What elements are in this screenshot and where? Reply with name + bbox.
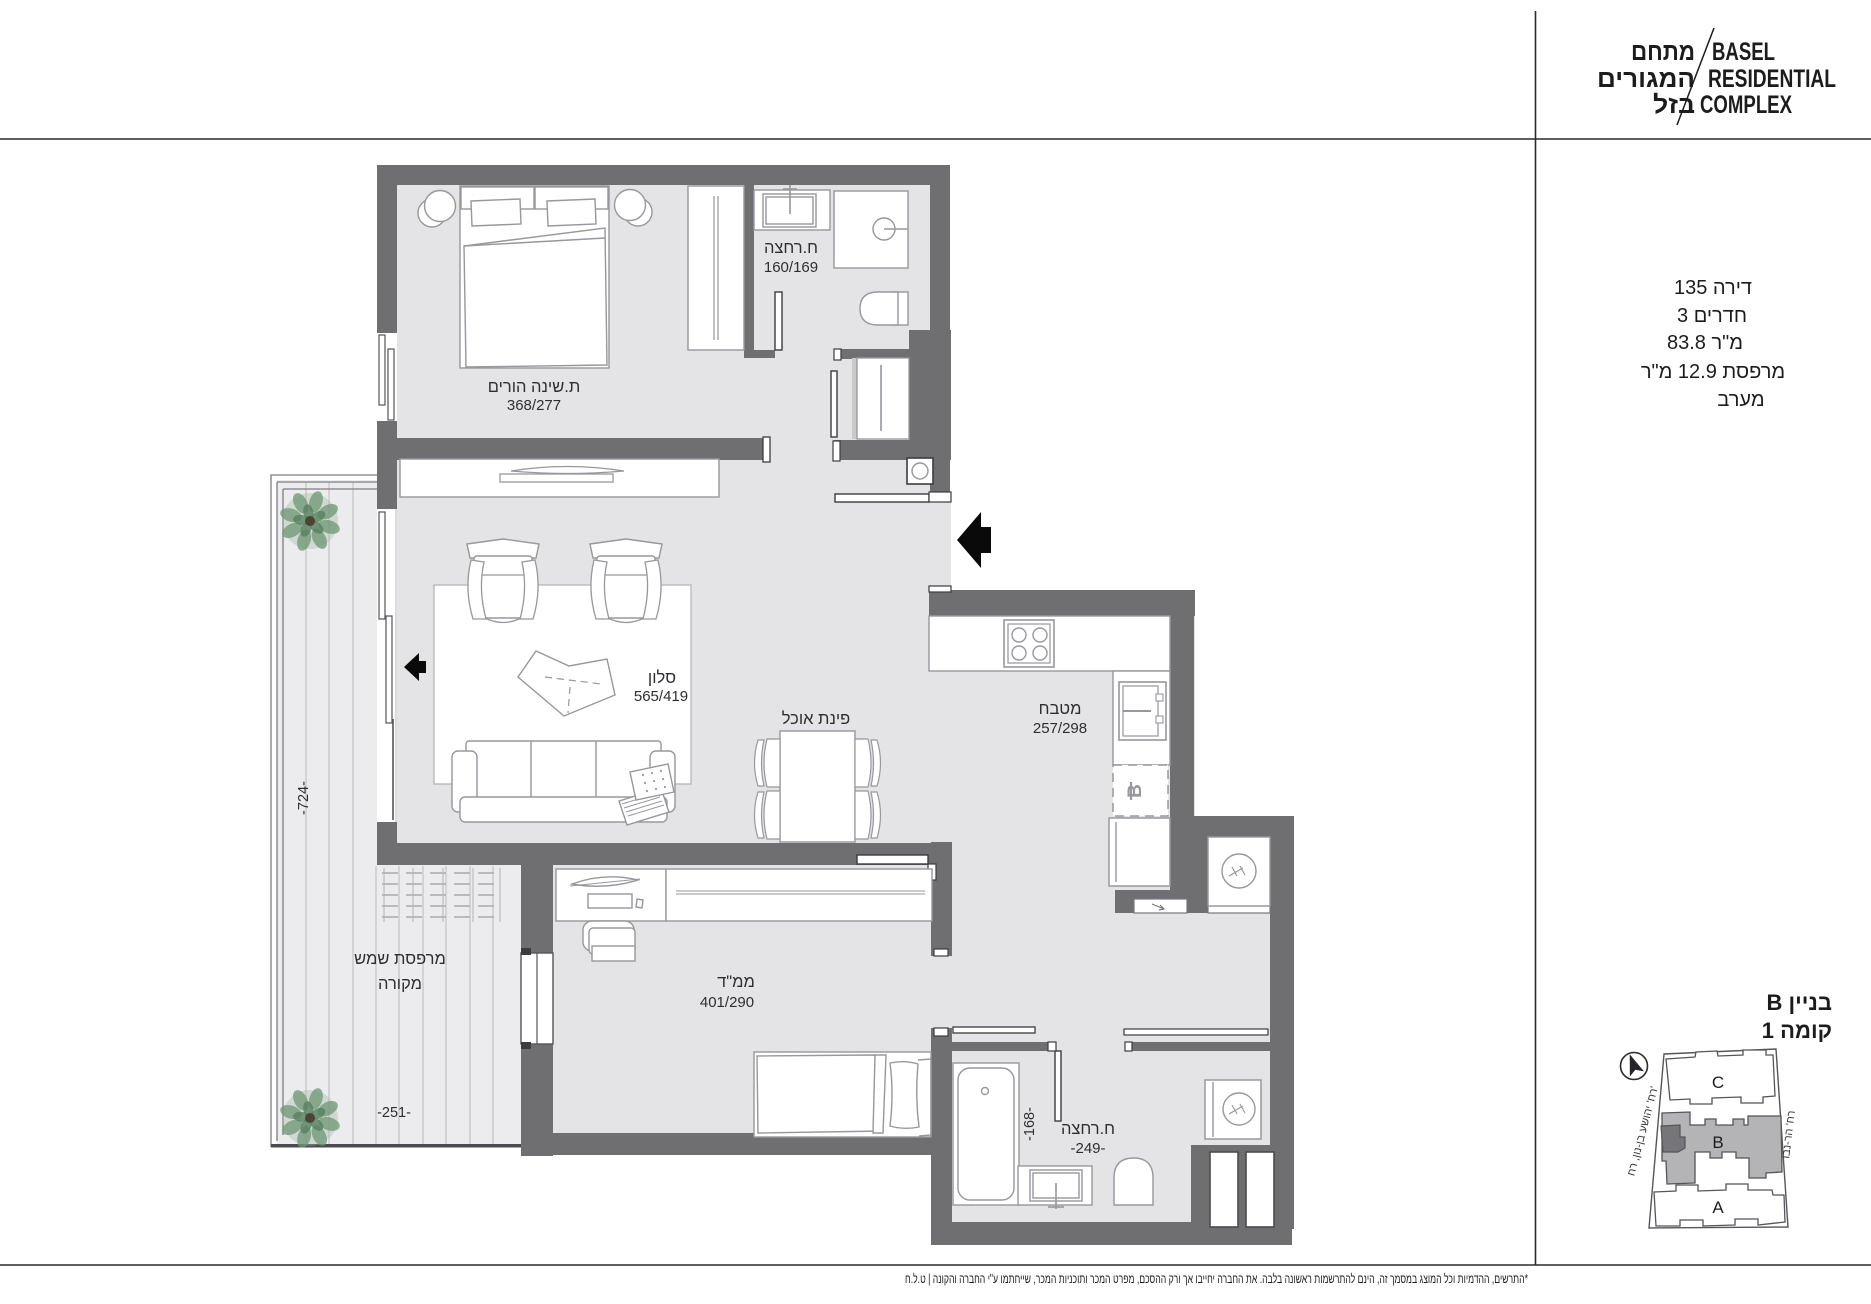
svg-text:565/419: 565/419 — [634, 688, 688, 705]
svg-text:368/277: 368/277 — [507, 397, 561, 414]
svg-text:257/298: 257/298 — [1033, 720, 1087, 737]
svg-text:RESIDENTIAL: RESIDENTIAL — [1708, 65, 1836, 93]
svg-text:160/169: 160/169 — [764, 259, 818, 276]
svg-text:COMPLEX: COMPLEX — [1700, 91, 1792, 119]
svg-text:C: C — [1712, 1073, 1724, 1092]
svg-text:מרפסת 12.9 מ"ר: מרפסת 12.9 מ"ר — [1641, 361, 1785, 383]
svg-text:A: A — [1712, 1198, 1724, 1217]
svg-text:פינת אוכל: פינת אוכל — [782, 710, 850, 728]
svg-text:המגורים: המגורים — [1597, 65, 1695, 93]
svg-text:*התרשים, ההדמיות וכל המוצג במס: *התרשים, ההדמיות וכל המוצג במסמך זה, הינ… — [905, 1272, 1528, 1286]
svg-text:מרפסת שמש: מרפסת שמש — [354, 950, 446, 968]
svg-text:קומה 1: קומה 1 — [1762, 1018, 1832, 1043]
svg-text:מערב: מערב — [1717, 389, 1764, 411]
svg-text:רח' הר-נבו: רח' הר-נבו — [1780, 1110, 1798, 1159]
svg-text:סלון: סלון — [648, 669, 676, 687]
svg-text:-249-: -249- — [1070, 1140, 1105, 1157]
svg-text:ח.רחצה: ח.רחצה — [764, 239, 818, 257]
svg-text:83.8 מ"ר: 83.8 מ"ר — [1667, 332, 1743, 354]
svg-text:BASEL: BASEL — [1712, 38, 1775, 66]
svg-text:B: B — [1125, 784, 1146, 798]
svg-text:ממ"ד: ממ"ד — [717, 973, 755, 991]
svg-text:ת.שינה הורים: ת.שינה הורים — [488, 378, 580, 396]
svg-text:3 חדרים: 3 חדרים — [1677, 305, 1747, 327]
svg-text:מטבח: מטבח — [1039, 700, 1082, 718]
svg-text:בניין B: בניין B — [1767, 990, 1833, 1015]
svg-text:-724-: -724- — [296, 781, 312, 815]
svg-text:B: B — [1712, 1133, 1723, 1152]
svg-text:-251-: -251- — [377, 1105, 411, 1121]
svg-text:בזל: בזל — [1653, 91, 1695, 119]
svg-text:מקורה: מקורה — [378, 975, 422, 993]
svg-text:ח.רחצה: ח.רחצה — [1061, 1120, 1115, 1138]
svg-text:מתחם: מתחם — [1631, 38, 1695, 66]
svg-text:401/290: 401/290 — [700, 994, 754, 1011]
svg-text:דירה 135: דירה 135 — [1674, 277, 1752, 299]
svg-text:-168-: -168- — [1022, 1107, 1038, 1141]
